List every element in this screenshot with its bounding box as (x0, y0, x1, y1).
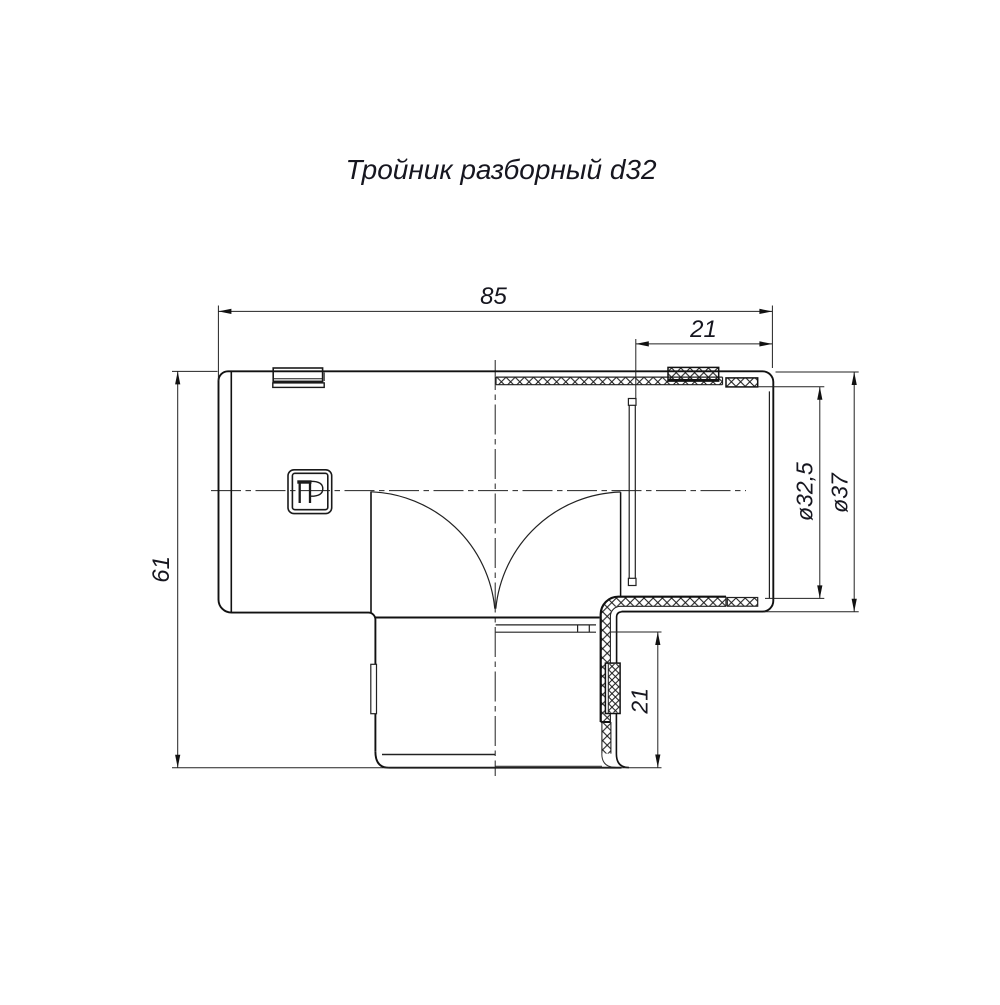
svg-text:ø32,5: ø32,5 (792, 462, 818, 521)
svg-text:21: 21 (627, 688, 653, 715)
svg-text:Тройник разборный d32: Тройник разборный d32 (345, 154, 657, 185)
svg-text:61: 61 (148, 556, 175, 583)
svg-text:85: 85 (480, 283, 507, 310)
svg-text:21: 21 (689, 316, 717, 343)
svg-text:ø37: ø37 (827, 472, 853, 513)
